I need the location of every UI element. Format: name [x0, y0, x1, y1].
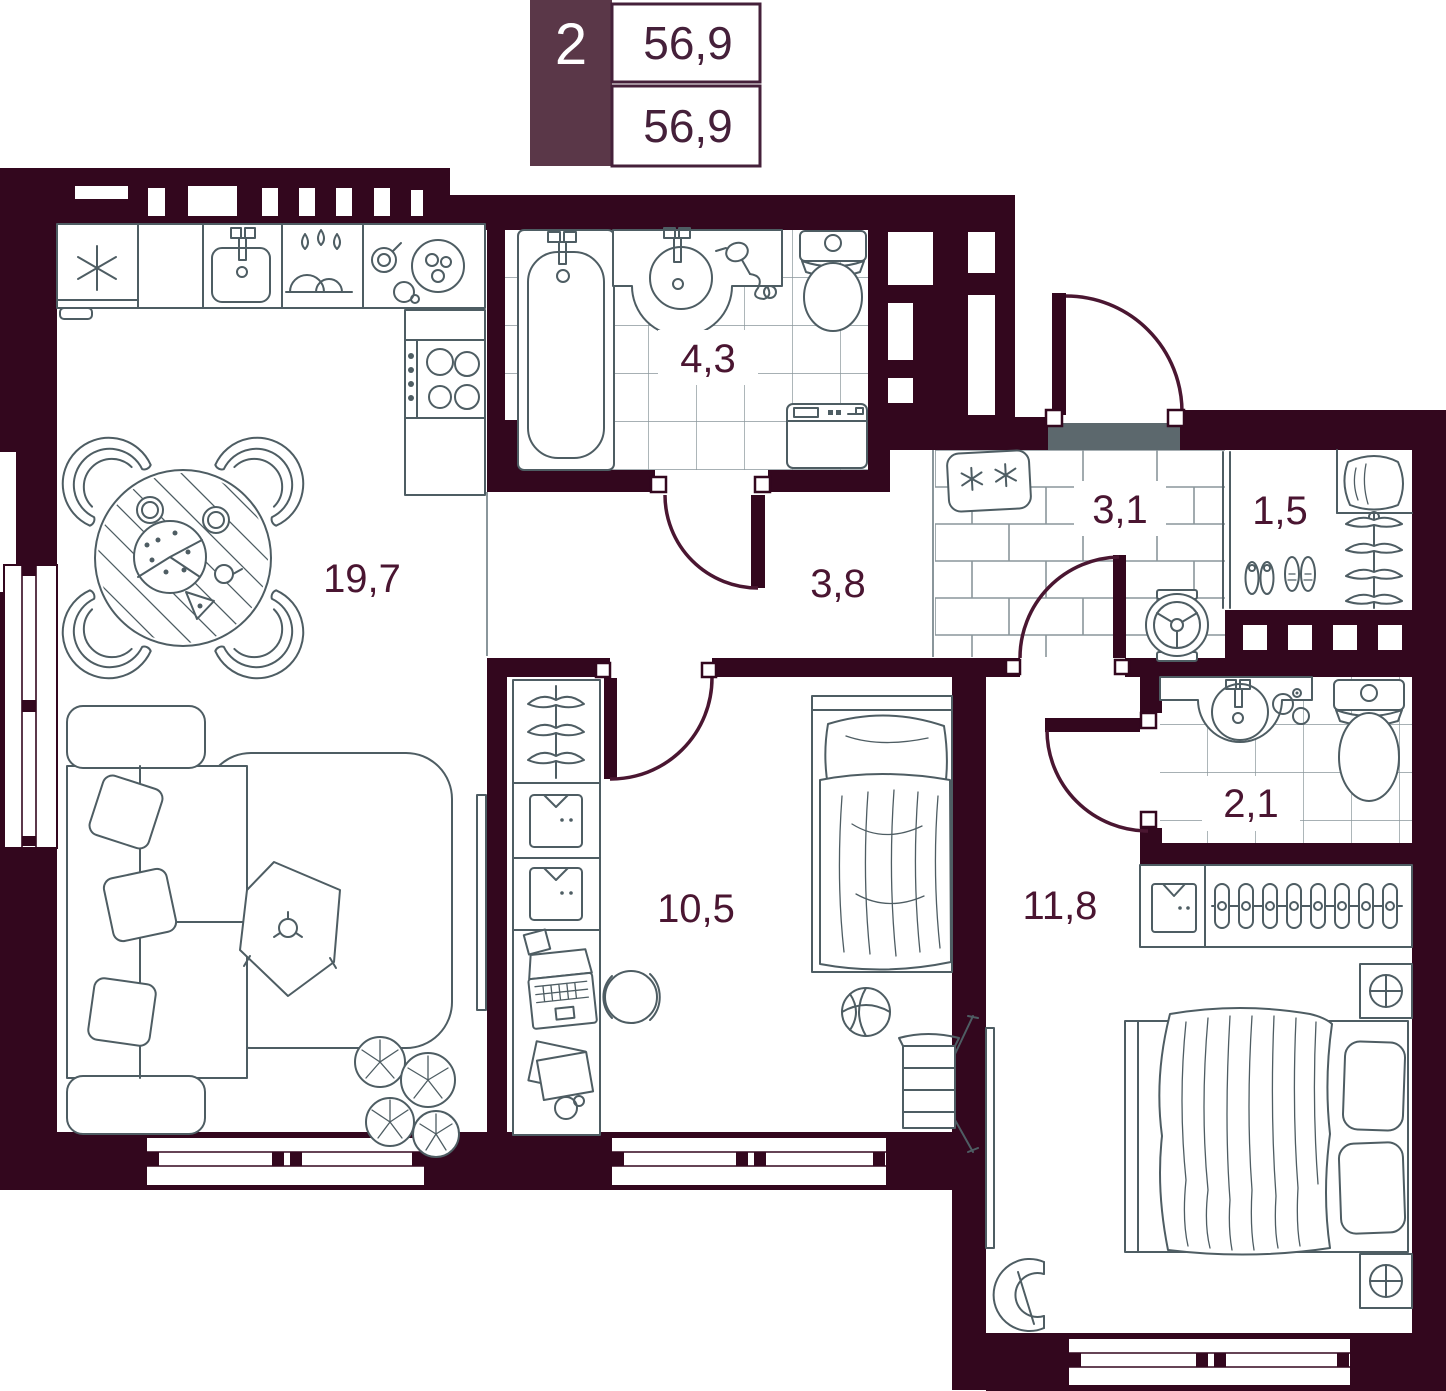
kids-room [513, 680, 978, 1152]
badge-rooms-count: 2 [555, 12, 587, 77]
entry-threshold [1048, 423, 1180, 450]
badge-living-area: 56,9 [643, 100, 733, 152]
washing-machine-icon [787, 404, 867, 468]
nightstand-lamp-icon [1360, 1254, 1412, 1308]
label-living-kitchen: 19,7 [323, 557, 401, 601]
pillow [1342, 1041, 1405, 1131]
label-kids-room: 10,5 [657, 887, 735, 931]
label-hallway: 3,1 [1092, 488, 1148, 532]
shaft [968, 295, 995, 415]
label-bathroom: 4,3 [680, 337, 736, 381]
single-bed-icon [812, 696, 952, 972]
coffee-table-icon [240, 862, 340, 996]
floorplan-drawing: 19,7 4,3 3,8 3,1 1,5 2,1 10,5 11,8 2 56,… [0, 0, 1446, 1391]
shaft [1288, 625, 1312, 650]
double-bed-icon [1125, 1008, 1408, 1255]
folded-shirt-icon [530, 795, 582, 847]
bedroom-door-leaf [1113, 555, 1126, 658]
jacket-icon [1344, 456, 1403, 510]
folded-shirt-icon [1152, 884, 1196, 932]
bathtub-icon [518, 230, 614, 470]
wc-door-leaf [1045, 718, 1140, 732]
kitchen [57, 224, 485, 495]
coat-rack-icon [1346, 512, 1402, 608]
label-bedroom: 11,8 [1023, 884, 1098, 928]
laptop-icon [526, 949, 597, 1029]
blanket [1159, 1008, 1332, 1255]
pillow [1338, 1142, 1405, 1234]
pillow [102, 867, 178, 943]
bedroom-wardrobe-icon [1140, 865, 1412, 947]
shaft [888, 303, 913, 360]
shaft [1378, 625, 1402, 650]
wc-door-arc [1047, 730, 1148, 831]
folded-shirt-icon [530, 868, 582, 920]
shaft [1333, 625, 1357, 650]
area-badge: 2 56,9 56,9 [530, 0, 760, 166]
nightstand-lamp-icon [1360, 964, 1412, 1018]
stove-icon [405, 310, 485, 495]
bathroom-door-leaf [751, 495, 765, 588]
wc-toilet-icon [1334, 680, 1404, 801]
kids-door-leaf [604, 678, 617, 779]
window-bedroom [1068, 1338, 1351, 1386]
shaft [1243, 625, 1267, 650]
label-closet: 1,5 [1252, 489, 1308, 533]
entry-door-arc [1066, 296, 1182, 412]
shaft [888, 232, 933, 285]
badge-total-area: 56,9 [643, 17, 733, 69]
window-kids [611, 1137, 887, 1186]
bedroom [986, 865, 1412, 1331]
doormat-icon [947, 450, 1032, 512]
shaft [888, 378, 913, 403]
shaft [968, 232, 995, 273]
tv-panel-living-icon [477, 795, 486, 1010]
toilet-icon [800, 231, 866, 331]
entry-door-leaf [1052, 293, 1066, 415]
floorplan-page: 19,7 4,3 3,8 3,1 1,5 2,1 10,5 11,8 2 56,… [0, 0, 1446, 1391]
tv-panel-bedroom-icon [986, 1028, 994, 1248]
corner-sofa-icon [67, 706, 247, 1134]
living-zone [67, 706, 486, 1157]
label-corridor: 3,8 [810, 562, 866, 606]
desk-chair-icon [603, 971, 659, 1023]
window-left [4, 565, 57, 848]
pillow [87, 977, 157, 1047]
bathroom-door-arc [665, 495, 758, 588]
basketball-icon [842, 988, 890, 1036]
label-wc: 2,1 [1223, 782, 1279, 826]
kids-door-arc [610, 678, 712, 779]
armchair-icon [994, 1259, 1044, 1331]
shoes-icon [1246, 557, 1316, 594]
